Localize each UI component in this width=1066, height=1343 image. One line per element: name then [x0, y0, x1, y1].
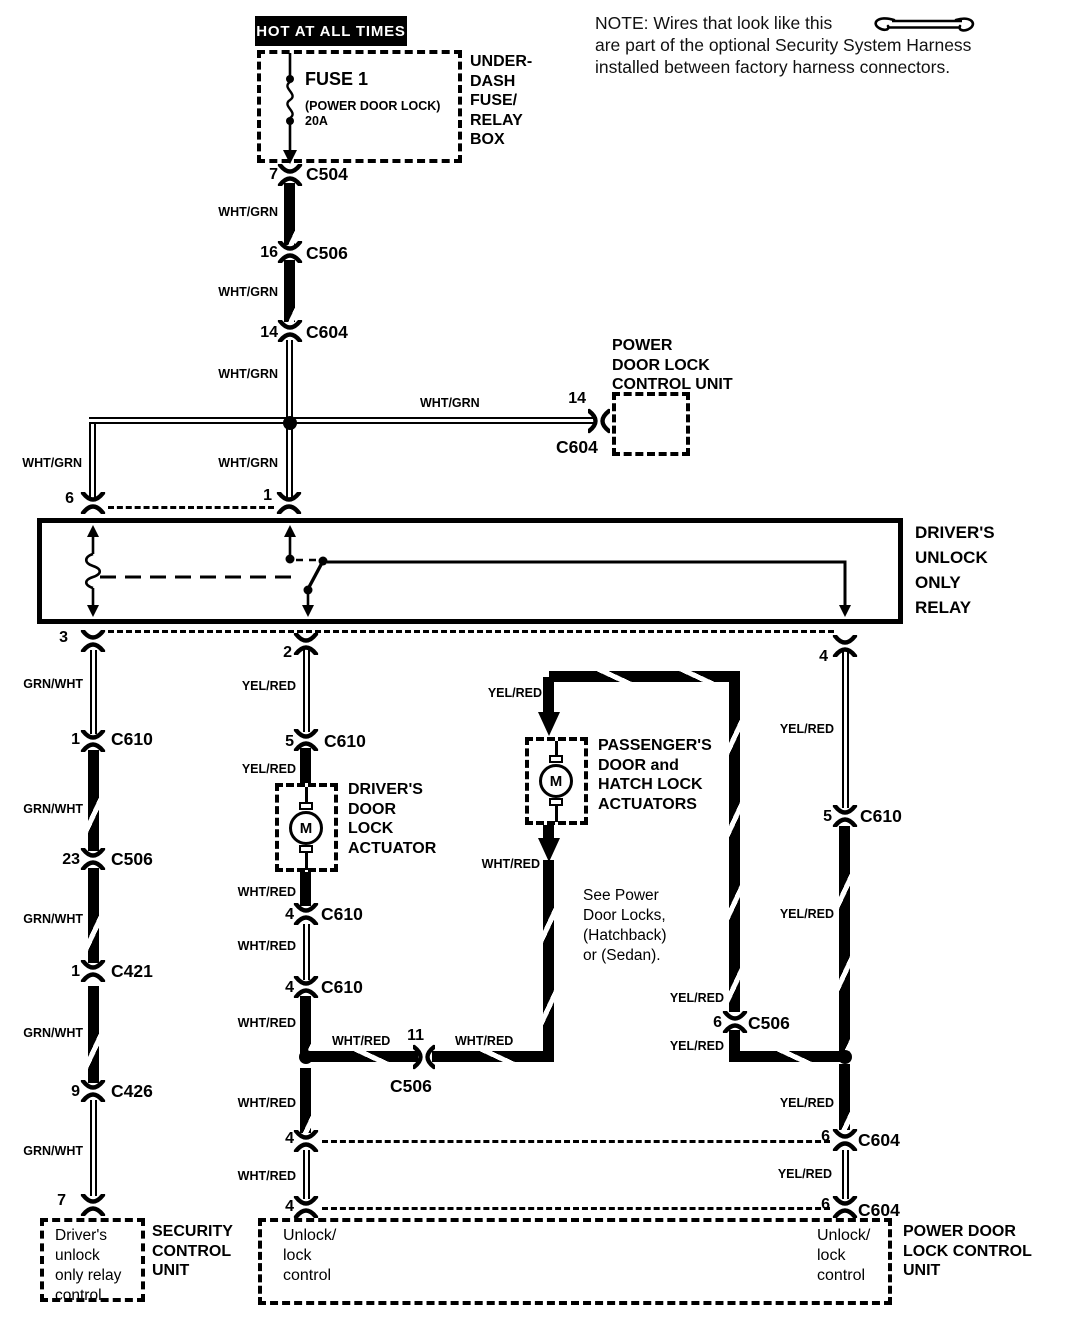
connector-pdlcu-pin4-icon [293, 1130, 319, 1152]
pin-number: 5 [800, 808, 832, 826]
motor-label: M [550, 773, 563, 790]
fuse-symbol-icon [278, 53, 302, 165]
pin-number: 4 [262, 906, 294, 924]
wire-color-label: YEL/RED [770, 907, 834, 921]
wire-color-label: YEL/RED [216, 762, 296, 776]
wire-grn-wht [90, 1100, 97, 1196]
wire-color-label: WHT/GRN [198, 367, 278, 381]
motor-lead [305, 853, 308, 870]
wire-color-label: YEL/RED [770, 1096, 834, 1110]
pdlcu-bottom-label: POWER DOOR LOCK CONTROL UNIT [903, 1222, 1032, 1281]
connector-name: C506 [390, 1076, 432, 1097]
wire-yel-red-security [729, 672, 740, 1012]
driver-actuator-label: DRIVER'S DOOR LOCK ACTUATOR [348, 780, 436, 858]
wire-color-label: WHT/GRN [2, 456, 82, 470]
pin-number: 14 [560, 390, 586, 408]
scu-box-text: Driver's unlock only relay control [55, 1226, 121, 1306]
connector-name: C506 [111, 849, 153, 870]
wire-yel-red [842, 652, 849, 808]
wire-grn-wht [90, 650, 97, 734]
wire-color-label: WHT/RED [216, 1096, 296, 1110]
pin-number: 3 [38, 629, 68, 647]
wire-yel-red-security [839, 1064, 850, 1130]
pin-number: 23 [48, 851, 80, 869]
pin-number: 6 [798, 1128, 830, 1146]
wire-wht-red-security [300, 996, 311, 1056]
connector-row-dashed-line [322, 1140, 830, 1143]
connector-c421-icon [80, 960, 106, 982]
wire-grn-wht-security [88, 986, 99, 1083]
flow-arrow-icon [538, 712, 560, 736]
connector-c604-icon [832, 1129, 858, 1151]
pin-number: 4 [798, 648, 828, 666]
pin-number: 5 [262, 733, 294, 751]
passenger-actuator-label: PASSENGER'S DOOR and HATCH LOCK ACTUATOR… [598, 736, 712, 814]
wire-color-label: WHT/RED [216, 939, 296, 953]
pin-number: 9 [48, 1083, 80, 1101]
connector-row-dashed-line [108, 506, 274, 509]
pdlcu-top-box [612, 392, 690, 456]
wire-color-label: GRN/WHT [5, 677, 83, 691]
wire-yel-red-security [839, 826, 850, 1052]
connector-name: C604 [306, 322, 348, 343]
pin-number: 7 [36, 1192, 66, 1210]
pdlcu-top-label: POWER DOOR LOCK CONTROL UNIT [612, 336, 733, 395]
motor-icon: M [539, 764, 573, 798]
wire-color-label: YEL/RED [656, 1039, 724, 1053]
pin-number: 6 [44, 490, 74, 508]
wire-wht-red-security [300, 872, 311, 906]
pin-number: 1 [242, 487, 272, 505]
connector-name: C506 [748, 1013, 790, 1034]
pin-number: 16 [246, 244, 278, 262]
wire-yel-red-security [549, 671, 740, 682]
wire-yel-red-security [300, 748, 311, 783]
unlock-lock-control-left: Unlock/ lock control [283, 1226, 336, 1286]
pin-number: 4 [262, 1198, 294, 1216]
connector-row-dashed-line [108, 630, 834, 633]
connector-name: C610 [324, 731, 366, 752]
connector-name: C610 [860, 806, 902, 827]
connector-name: C426 [111, 1081, 153, 1102]
connector-name: C610 [321, 977, 363, 998]
wire-color-label: WHT/RED [455, 1034, 513, 1048]
pin-number: 6 [798, 1196, 830, 1214]
fuse-rating: 20A [305, 112, 328, 132]
connector-relay-pin3-icon [80, 630, 106, 652]
pin-number: 14 [246, 324, 278, 342]
connector-name: C604 [858, 1130, 900, 1151]
fuse-name: FUSE 1 [305, 70, 368, 90]
connector-name: C504 [306, 164, 348, 185]
flow-arrow-icon [538, 838, 560, 862]
wire-yel-red-security [543, 677, 554, 713]
wire-wht-red-security [543, 825, 554, 839]
wire-wht-red-security [300, 1068, 311, 1133]
motor-label: M [300, 820, 313, 837]
connector-relay-pin1-icon [276, 492, 302, 514]
hot-at-all-times-badge: HOT AT ALL TIMES [255, 16, 407, 46]
motor-lead [305, 787, 308, 803]
connector-relay-pin6-icon [80, 492, 106, 514]
motor-terminal [549, 798, 563, 806]
connector-row-dashed-line [322, 1207, 830, 1210]
wire-color-label: WHT/GRN [420, 396, 480, 410]
motor-lead [555, 806, 558, 822]
connector-c610-icon [293, 976, 319, 998]
relay-label: DRIVER'S UNLOCK ONLY RELAY [915, 520, 995, 620]
wire-color-label: WHT/RED [216, 1016, 296, 1030]
pin-number: 1 [48, 731, 80, 749]
wire-wht-red-security [432, 1051, 554, 1062]
connector-name: C604 [556, 437, 598, 458]
wire-wht-red-security [543, 860, 554, 1062]
scu-label: SECURITY CONTROL UNIT [152, 1222, 233, 1281]
relay-internal-circuit-icon [42, 523, 898, 619]
connector-c610-icon [80, 730, 106, 752]
wire-wht-grn-branch-left [89, 417, 287, 424]
pin-number: 6 [690, 1014, 722, 1032]
motor-lead [555, 741, 558, 756]
junction-dot [838, 1050, 852, 1064]
wire-yel-red-security [729, 1051, 845, 1062]
connector-name: C421 [111, 961, 153, 982]
connector-c506-icon [80, 848, 106, 870]
pin-number: 4 [262, 979, 294, 997]
wire-color-label: GRN/WHT [5, 802, 83, 816]
wire-color-label: GRN/WHT [5, 912, 83, 926]
wire-wht-grn [286, 340, 293, 420]
note-rest: are part of the optional Security System… [595, 34, 971, 78]
wire-color-label: WHT/GRN [198, 285, 278, 299]
pin-number: 11 [398, 1027, 424, 1045]
pin-number: 2 [262, 644, 292, 662]
wire-color-label: WHT/GRN [198, 205, 278, 219]
connector-c604-icon [832, 1196, 858, 1218]
connector-scu-pin7-icon [80, 1194, 106, 1216]
wire-wht-red [303, 924, 310, 980]
wire-yel-red [303, 650, 310, 732]
wire-color-label: WHT/RED [468, 857, 540, 871]
pin-number: 7 [246, 166, 278, 184]
wire-grn-wht-security [88, 868, 99, 963]
connector-name: C610 [111, 729, 153, 750]
security-harness-wire-symbol-icon [868, 16, 980, 36]
wire-yel-red [842, 1150, 849, 1199]
wire-wht-grn-to-pin1 [286, 428, 293, 498]
wire-color-label: YEL/RED [656, 991, 724, 1005]
wire-wht-grn-security [284, 183, 295, 245]
wire-color-label: WHT/RED [332, 1034, 390, 1048]
wire-color-label: WHT/RED [216, 1169, 296, 1183]
junction-dot [299, 1050, 313, 1064]
pin-number: 4 [262, 1130, 294, 1148]
pin-number: 1 [48, 963, 80, 981]
wire-color-label: YEL/RED [770, 722, 834, 736]
motor-terminal [299, 845, 313, 853]
motor-icon: M [289, 811, 323, 845]
unlock-lock-control-right: Unlock/ lock control [817, 1226, 870, 1286]
connector-pdlcu-pin4-icon [293, 1196, 319, 1218]
wire-wht-grn-to-control-unit [294, 417, 597, 424]
connector-c610-icon [832, 805, 858, 827]
wiring-diagram: NOTE: Wires that look like this are part… [0, 0, 1066, 1343]
wire-color-label: YEL/RED [768, 1167, 832, 1181]
connector-c426-icon [80, 1080, 106, 1102]
wire-color-label: WHT/RED [216, 885, 296, 899]
wire-color-label: YEL/RED [216, 679, 296, 693]
connector-c604-icon [588, 408, 610, 434]
see-power-door-locks-note: See Power Door Locks, (Hatchback) or (Se… [583, 886, 667, 966]
wire-grn-wht-security [88, 750, 99, 851]
wire-color-label: GRN/WHT [5, 1026, 83, 1040]
wire-wht-grn-to-pin6 [89, 422, 96, 498]
wire-color-label: GRN/WHT [5, 1144, 83, 1158]
connector-c610-icon [293, 903, 319, 925]
underdash-box-label: UNDER- DASH FUSE/ RELAY BOX [470, 52, 532, 150]
motor-terminal [549, 755, 563, 763]
pdlcu-bottom-box [258, 1218, 892, 1305]
wire-wht-grn-security [284, 260, 295, 322]
note-line1: NOTE: Wires that look like this [595, 12, 832, 34]
wire-color-label: WHT/GRN [198, 456, 278, 470]
wire-wht-red [303, 1150, 310, 1199]
connector-c604-icon [277, 320, 303, 342]
wire-wht-red-security [306, 1051, 418, 1062]
connector-name: C610 [321, 904, 363, 925]
connector-name: C506 [306, 243, 348, 264]
wire-color-label: YEL/RED [470, 686, 542, 700]
motor-terminal [299, 802, 313, 810]
